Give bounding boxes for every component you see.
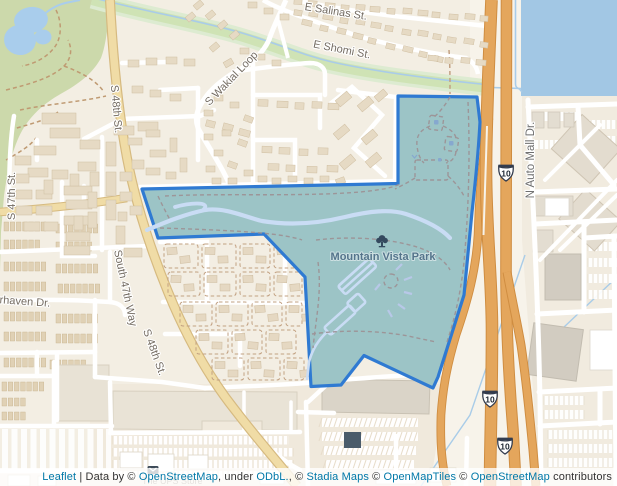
svg-text:N Auto Mall Dr.: N Auto Mall Dr. [525,122,537,199]
svg-text:Mountain Vista Park: Mountain Vista Park [331,251,437,263]
svg-text:S 47th St.: S 47th St. [6,172,18,220]
svg-text:10: 10 [501,169,511,179]
svg-text:10: 10 [485,395,495,405]
svg-text:10: 10 [500,442,510,452]
